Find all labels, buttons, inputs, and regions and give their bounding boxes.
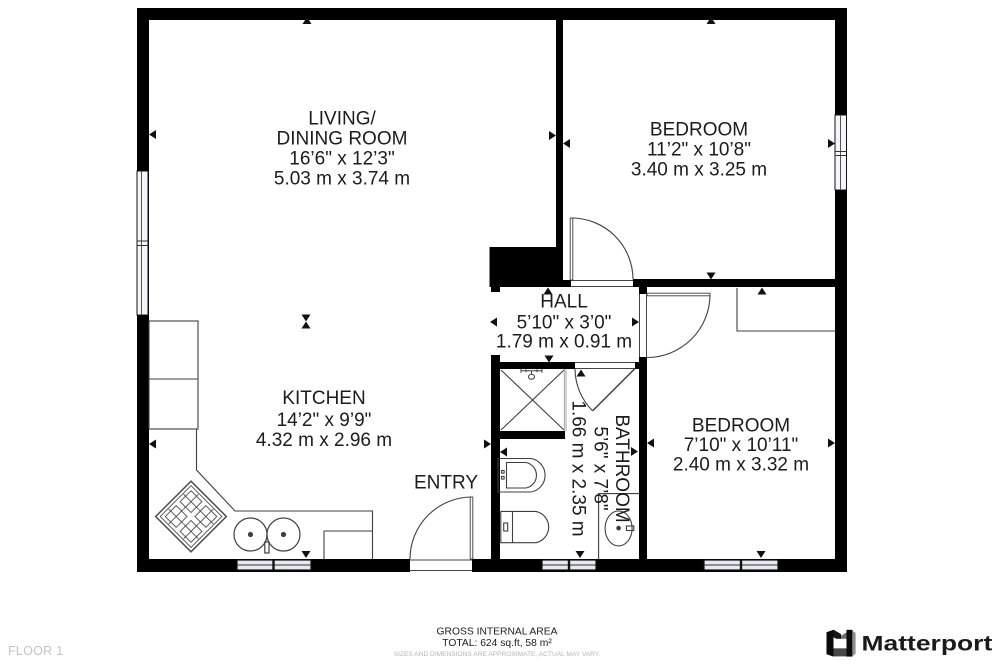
svg-text:TOTAL: 624 sq.ft, 58 m²: TOTAL: 624 sq.ft, 58 m² <box>442 638 552 649</box>
svg-text:16’6" x 12’3": 16’6" x 12’3" <box>289 149 394 170</box>
svg-text:3.40 m x 3.25 m: 3.40 m x 3.25 m <box>631 160 767 181</box>
svg-text:5’10" x 3’0": 5’10" x 3’0" <box>517 313 612 334</box>
svg-text:SIZES AND DIMENSIONS ARE APPRO: SIZES AND DIMENSIONS ARE APPROXIMATE, AC… <box>394 651 601 658</box>
svg-text:11’2" x 10’8": 11’2" x 10’8" <box>647 140 751 161</box>
svg-text:FLOOR 1: FLOOR 1 <box>8 644 63 658</box>
svg-text:4.32 m x 2.96 m: 4.32 m x 2.96 m <box>256 430 392 451</box>
svg-text:5.03 m x 3.74 m: 5.03 m x 3.74 m <box>274 169 410 190</box>
svg-text:7’10" x 10’11": 7’10" x 10’11" <box>684 435 799 456</box>
svg-text:LIVING/: LIVING/ <box>308 109 376 130</box>
svg-text:GROSS INTERNAL AREA: GROSS INTERNAL AREA <box>437 627 558 638</box>
svg-text:HALL: HALL <box>540 292 588 313</box>
svg-text:ENTRY: ENTRY <box>414 473 478 494</box>
svg-text:KITCHEN: KITCHEN <box>282 388 365 409</box>
svg-text:DINING ROOM: DINING ROOM <box>277 129 408 150</box>
svg-text:BEDROOM: BEDROOM <box>650 120 748 141</box>
svg-text:1.79 m x 0.91 m: 1.79 m x 0.91 m <box>496 332 632 353</box>
svg-text:5’6" x 7’8": 5’6" x 7’8" <box>590 426 611 510</box>
svg-text:Matterport: Matterport <box>862 632 992 656</box>
svg-text:14’2" x 9’9": 14’2" x 9’9" <box>277 410 372 431</box>
svg-text:BEDROOM: BEDROOM <box>692 416 790 437</box>
svg-text:BATHROOM: BATHROOM <box>611 414 632 522</box>
svg-text:1.66 m x 2.35 m: 1.66 m x 2.35 m <box>568 400 589 536</box>
svg-text:2.40 m x 3.32 m: 2.40 m x 3.32 m <box>673 455 809 476</box>
